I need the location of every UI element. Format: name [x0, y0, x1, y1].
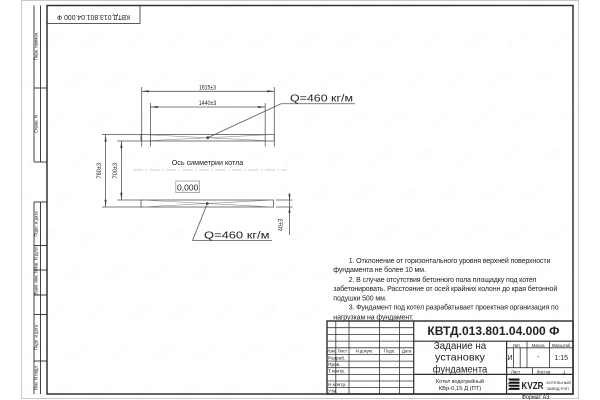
- svg-text:Лист: Лист: [338, 349, 347, 354]
- svg-text:Подп. и дата: Подп. и дата: [34, 324, 39, 350]
- svg-text:КВТД.013.801.04.000 Ф: КВТД.013.801.04.000 Ф: [57, 13, 130, 20]
- svg-text:0,000: 0,000: [177, 183, 199, 193]
- svg-text:И: И: [507, 355, 512, 362]
- svg-text:Перв. примен.: Перв. примен.: [34, 32, 39, 61]
- svg-text:780±3: 780±3: [96, 163, 103, 179]
- svg-text:Ось симметрии котла: Ось симметрии котла: [172, 160, 244, 167]
- svg-text:Масштаб: Масштаб: [552, 343, 571, 348]
- svg-text:1615±3: 1615±3: [199, 84, 216, 91]
- svg-text:подушки 500 мм.: подушки 500 мм.: [333, 296, 386, 303]
- svg-text:нагрузкам на фундамент.: нагрузкам на фундамент.: [333, 314, 413, 321]
- svg-text:Пров.: Пров.: [328, 362, 341, 368]
- svg-text:КВТД.013.801.04.000 Ф: КВТД.013.801.04.000 Ф: [427, 326, 559, 338]
- svg-text:фундамента: фундамента: [433, 364, 488, 376]
- svg-text:Н.контр.: Н.контр.: [328, 382, 346, 388]
- svg-text:Листов: Листов: [537, 370, 552, 375]
- svg-text:ЗАВОД РЭП: ЗАВОД РЭП: [547, 386, 569, 391]
- svg-text:Задание на: Задание на: [434, 340, 487, 352]
- svg-text:Подп. и дата: Подп. и дата: [34, 211, 39, 237]
- svg-text:Инв. N подл.: Инв. N подл.: [34, 365, 39, 390]
- svg-text:Изм.: Изм.: [327, 349, 336, 354]
- svg-text:40±3: 40±3: [279, 218, 285, 231]
- svg-text:1440±3: 1440±3: [199, 100, 217, 107]
- svg-text:N докум.: N докум.: [356, 349, 373, 354]
- svg-text:Лист: Лист: [511, 370, 520, 375]
- svg-text:3. Фундамент под котел разраба: 3. Фундамент под котел разрабатывает про…: [349, 304, 559, 312]
- svg-text:КОТЕЛЬНЫЙ: КОТЕЛЬНЫЙ: [547, 380, 572, 385]
- svg-text:Утв.: Утв.: [328, 389, 337, 395]
- svg-text:1. Отклонение от горизонтально: 1. Отклонение от горизонтального уровня …: [349, 257, 551, 265]
- svg-text:Т.контр.: Т.контр.: [328, 369, 345, 375]
- svg-text:фундамента не более 10 мм.: фундамента не более 10 мм.: [333, 266, 426, 274]
- svg-text:КВр-0,15 Д (ПТ): КВр-0,15 Д (ПТ): [439, 386, 482, 392]
- svg-text:забетонировать. Расстояние от: забетонировать. Расстояние от осей крайн…: [333, 285, 557, 293]
- svg-text:Разраб.: Разраб.: [328, 356, 345, 362]
- svg-text:Инв. N дубл.: Инв. N дубл.: [34, 245, 39, 270]
- svg-text:2. В случае отсутствия бетонно: 2. В случае отсутствия бетонного пола пл…: [349, 276, 537, 284]
- svg-text:Взам. инв. N: Взам. инв. N: [34, 270, 39, 295]
- svg-text:Формат А3: Формат А3: [522, 395, 550, 400]
- svg-text:KVZR: KVZR: [522, 380, 544, 392]
- svg-text:Лит.: Лит.: [513, 343, 521, 348]
- svg-text:установку: установку: [435, 352, 486, 364]
- svg-text:Справ. N: Справ. N: [34, 115, 39, 133]
- svg-text:700±3: 700±3: [112, 163, 119, 179]
- svg-text:Q=460 кг/м: Q=460 кг/м: [290, 92, 353, 104]
- svg-text:1:15: 1:15: [554, 355, 568, 362]
- svg-text:Дата: Дата: [402, 349, 412, 354]
- svg-text:Подп.: Подп.: [384, 349, 395, 354]
- svg-text:Масса: Масса: [532, 343, 545, 348]
- svg-text:Q=460 кг/м: Q=460 кг/м: [204, 229, 270, 241]
- svg-text:Котел водогрейный: Котел водогрейный: [436, 378, 484, 385]
